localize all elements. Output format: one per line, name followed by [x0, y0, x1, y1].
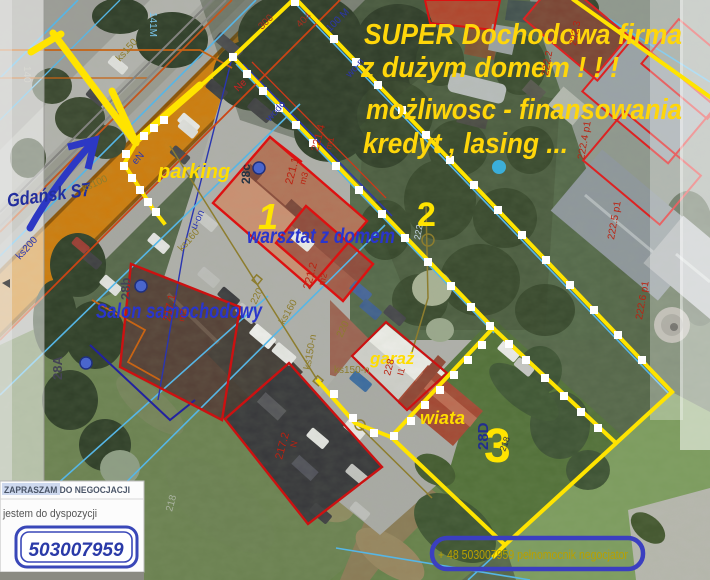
svg-text:SUPER Dochodowa firma: SUPER Dochodowa firma [364, 19, 682, 51]
svg-text:wiata: wiata [420, 408, 465, 428]
svg-text:141M: 141M [147, 12, 158, 37]
svg-text:28D: 28D [475, 422, 492, 450]
svg-text:503007959: 503007959 [28, 540, 124, 561]
svg-text:28b: 28b [118, 278, 133, 300]
svg-text:parking: parking [157, 161, 230, 183]
svg-text:+ 48 503007959 pełnomocnik n: + 48 503007959 pełnomocnik negocjator [438, 548, 628, 562]
svg-text:ZAPRASZAM DO NEGOCJACJI: ZAPRASZAM DO NEGOCJACJI [4, 485, 130, 496]
svg-text:28A: 28A [50, 356, 65, 380]
svg-text:1: 1 [258, 196, 278, 237]
svg-text:kredyt , lasing ...: kredyt , lasing ... [363, 128, 568, 160]
svg-text:ks150-n: ks150-n [334, 365, 370, 376]
svg-text:z dużym domem ! ! !: z dużym domem ! ! ! [360, 52, 619, 84]
svg-text:140: 140 [21, 66, 32, 83]
svg-text:28c: 28c [239, 164, 253, 184]
svg-text:możliwosc - finansowania: możliwosc - finansowania [366, 94, 682, 126]
svg-text:jestem do dyspozycji: jestem do dyspozycji [2, 508, 97, 520]
